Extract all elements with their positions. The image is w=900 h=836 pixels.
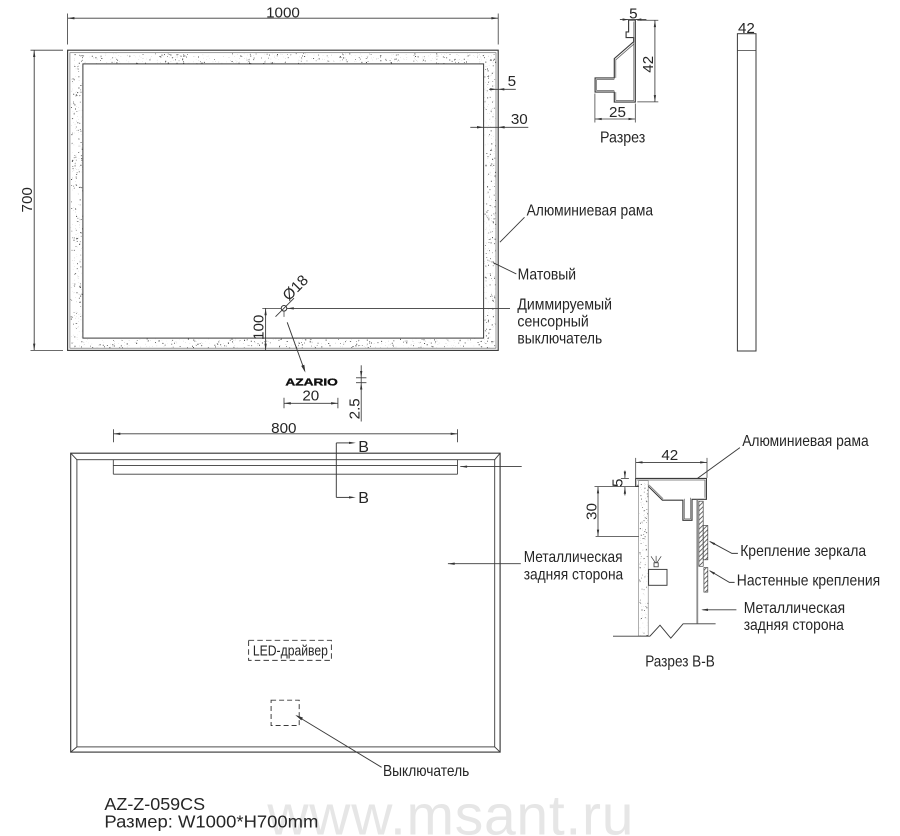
svg-text:Металлическая: Металлическая	[524, 549, 623, 566]
svg-text:5: 5	[610, 479, 627, 487]
svg-text:LED-драйвер: LED-драйвер	[253, 643, 328, 660]
svg-text:Матовый: Матовый	[518, 266, 577, 283]
svg-text:Выключатель: Выключатель	[383, 763, 469, 780]
svg-text:задняя сторона: задняя сторона	[744, 617, 844, 634]
svg-text:задняя сторона: задняя сторона	[524, 566, 624, 583]
svg-text:Разрез: Разрез	[600, 130, 645, 147]
svg-text:1000: 1000	[266, 5, 300, 22]
svg-text:30: 30	[511, 111, 528, 128]
svg-text:700: 700	[19, 187, 36, 212]
svg-text:Размер: W1000*H700mm: Размер: W1000*H700mm	[104, 812, 318, 832]
svg-text:42: 42	[640, 56, 657, 73]
svg-text:800: 800	[271, 420, 296, 437]
svg-text:25: 25	[609, 104, 626, 121]
svg-text:www.msant.ru: www.msant.ru	[266, 784, 633, 836]
svg-text:выключатель: выключатель	[517, 331, 602, 348]
svg-text:20: 20	[302, 387, 319, 404]
svg-text:Разрез В-В: Разрез В-В	[645, 654, 715, 671]
svg-text:B: B	[358, 490, 369, 507]
svg-text:5: 5	[508, 73, 516, 90]
svg-text:2.5: 2.5	[347, 398, 364, 419]
svg-text:42: 42	[661, 447, 678, 464]
svg-text:30: 30	[583, 503, 600, 520]
svg-text:Металлическая: Металлическая	[744, 600, 845, 617]
svg-text:B: B	[358, 439, 369, 456]
svg-text:100: 100	[251, 315, 268, 340]
svg-text:сенсорный: сенсорный	[517, 313, 588, 330]
svg-text:Алюминиевая рама: Алюминиевая рама	[527, 203, 654, 220]
svg-text:5: 5	[629, 5, 637, 22]
svg-text:Алюминиевая рама: Алюминиевая рама	[742, 433, 869, 450]
svg-text:Диммируемый: Диммируемый	[517, 296, 612, 313]
svg-text:42: 42	[738, 20, 755, 37]
svg-text:Крепление зеркала: Крепление зеркала	[740, 543, 866, 560]
svg-text:Настенные крепления: Настенные крепления	[737, 572, 880, 589]
